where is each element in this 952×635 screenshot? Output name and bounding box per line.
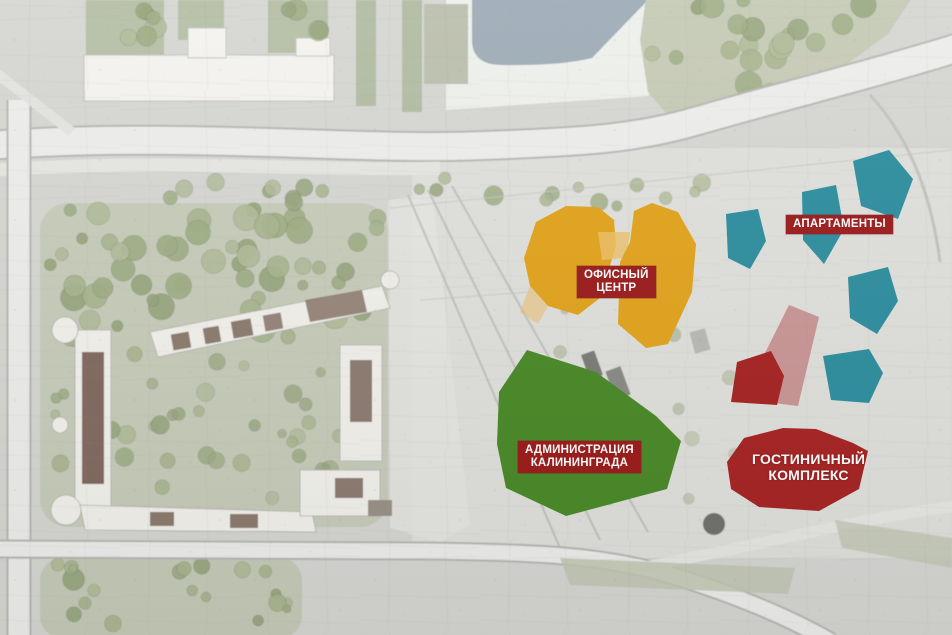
apartments-label: АПАРТАМЕНТЫ [786,215,893,234]
hotel-complex-label: ГОСТИНИЧНЫЙ КОМПЛЕКС [752,452,865,484]
office-center-label-line2: ЦЕНТР [596,282,636,294]
office-center-label-line1: ОФИСНЫЙ [584,269,649,281]
office-center-label: ОФИСНЫЙ ЦЕНТР [577,266,656,298]
hotel-complex-label-line2: КОМПЛЕКС [768,467,848,483]
administration-label-line1: АДМИНИСТРАЦИЯ [525,444,634,456]
administration-label-line2: КАЛИНИНГРАДА [531,457,628,469]
apartments-label-text: АПАРТАМЕНТЫ [793,218,886,230]
site-plan-frame: ОФИСНЫЙ ЦЕНТР АПАРТАМЕНТЫ АДМИНИСТРАЦИЯ … [0,0,952,635]
administration-label: АДМИНИСТРАЦИЯ КАЛИНИНГРАДА [518,441,641,473]
site-plan-map [0,0,952,635]
hotel-complex-label-line1: ГОСТИНИЧНЫЙ [752,451,865,467]
